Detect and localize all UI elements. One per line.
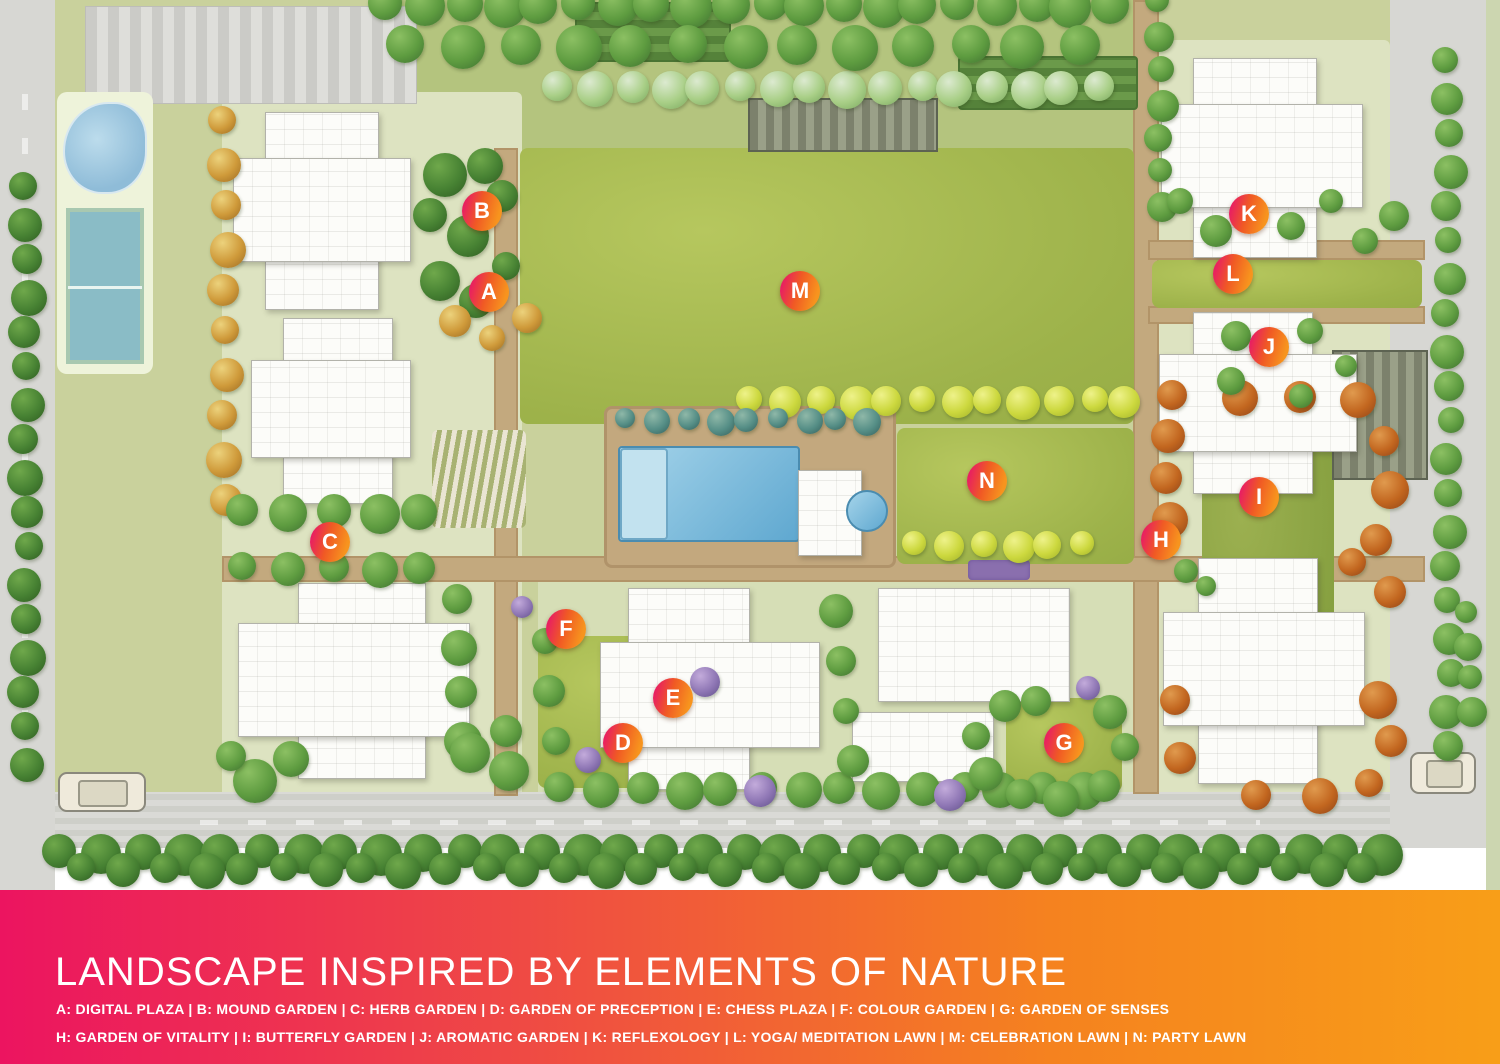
marker-letter: N (979, 470, 995, 492)
marker-k: K (1229, 194, 1269, 234)
marker-letter: E (666, 687, 681, 709)
marker-letter: A (481, 281, 497, 303)
marker-letter: J (1263, 336, 1275, 358)
marker-a: A (469, 272, 509, 312)
marker-letter: F (559, 618, 572, 640)
marker-e: E (653, 678, 693, 718)
marker-letter: D (615, 732, 631, 754)
garden-markers-layer: ABCDEFGHIJKLMN (0, 0, 1500, 890)
marker-n: N (967, 461, 1007, 501)
marker-letter: C (322, 531, 338, 553)
marker-c: C (310, 522, 350, 562)
marker-l: L (1213, 254, 1253, 294)
marker-letter: G (1055, 732, 1072, 754)
marker-f: F (546, 609, 586, 649)
marker-letter: M (791, 280, 809, 302)
marker-letter: I (1256, 486, 1262, 508)
marker-letter: K (1241, 203, 1257, 225)
site-map: ABCDEFGHIJKLMN (0, 0, 1500, 890)
marker-d: D (603, 723, 643, 763)
legend-line-2: H: GARDEN OF VITALITY | I: BUTTERFLY GAR… (56, 1029, 1246, 1045)
legend-line-1: A: DIGITAL PLAZA | B: MOUND GARDEN | C: … (56, 1001, 1169, 1017)
marker-b: B (462, 191, 502, 231)
title-banner: LANDSCAPE INSPIRED BY ELEMENTS OF NATURE… (0, 890, 1500, 1064)
marker-g: G (1044, 723, 1084, 763)
marker-h: H (1141, 520, 1181, 560)
marker-m: M (780, 271, 820, 311)
landscape-master-plan: ABCDEFGHIJKLMN LANDSCAPE INSPIRED BY ELE… (0, 0, 1500, 1064)
marker-letter: L (1226, 263, 1239, 285)
marker-letter: H (1153, 529, 1169, 551)
marker-letter: B (474, 200, 490, 222)
marker-j: J (1249, 327, 1289, 367)
marker-i: I (1239, 477, 1279, 517)
banner-title: LANDSCAPE INSPIRED BY ELEMENTS OF NATURE (55, 950, 1067, 995)
